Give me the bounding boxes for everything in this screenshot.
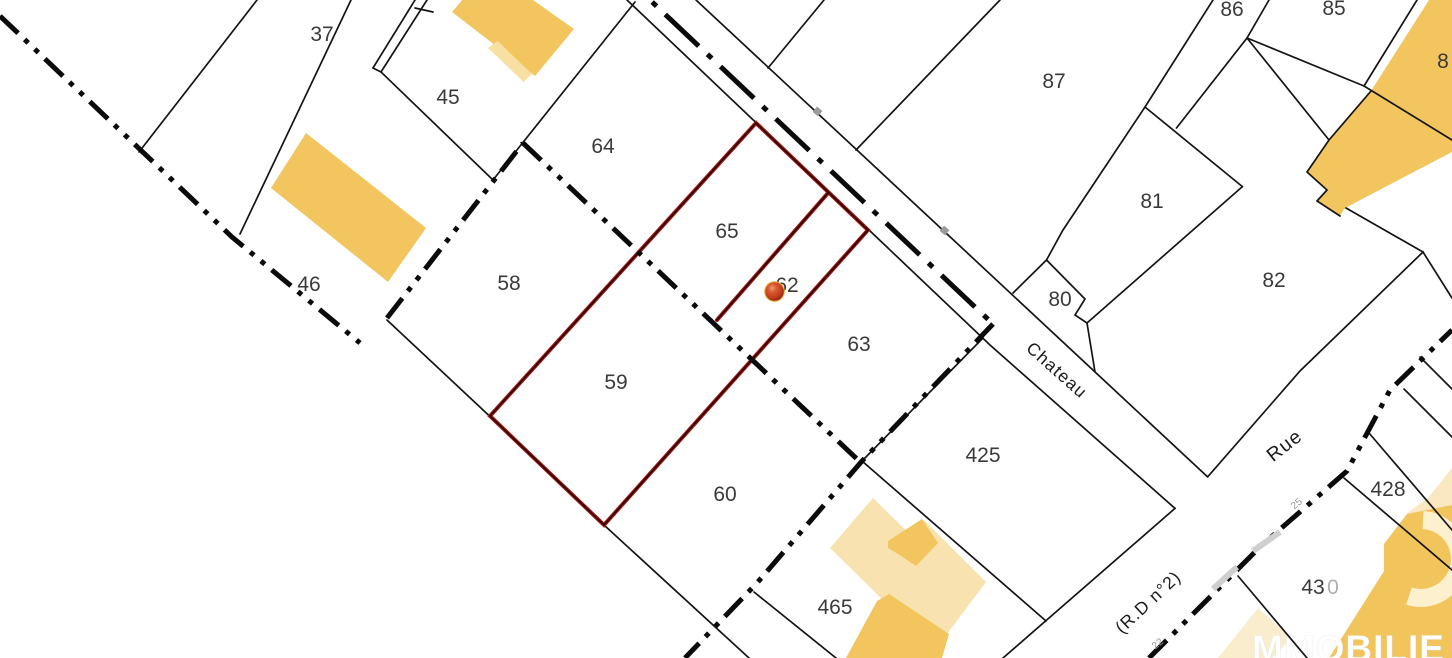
- svg-text:59: 59: [604, 371, 627, 394]
- svg-text:425: 425: [965, 444, 1000, 467]
- svg-text:87: 87: [1042, 70, 1065, 93]
- svg-text:43: 43: [1301, 576, 1324, 599]
- svg-text:65: 65: [715, 220, 738, 243]
- svg-text:37: 37: [310, 23, 333, 46]
- svg-text:80: 80: [1048, 288, 1071, 311]
- svg-text:465: 465: [817, 596, 852, 619]
- svg-text:428: 428: [1370, 478, 1405, 501]
- svg-text:MMOBILIE: MMOBILIE: [1252, 628, 1445, 658]
- svg-text:46: 46: [297, 273, 320, 296]
- svg-text:58: 58: [497, 272, 520, 295]
- svg-text:63: 63: [847, 333, 870, 356]
- svg-text:45: 45: [436, 86, 459, 109]
- svg-text:86: 86: [1220, 0, 1243, 21]
- svg-text:8: 8: [1437, 50, 1449, 73]
- svg-text:85: 85: [1322, 0, 1345, 20]
- svg-text:0: 0: [1327, 576, 1339, 599]
- svg-text:60: 60: [713, 483, 736, 506]
- svg-text:64: 64: [591, 135, 615, 158]
- svg-text:81: 81: [1140, 190, 1163, 213]
- svg-text:82: 82: [1262, 269, 1285, 292]
